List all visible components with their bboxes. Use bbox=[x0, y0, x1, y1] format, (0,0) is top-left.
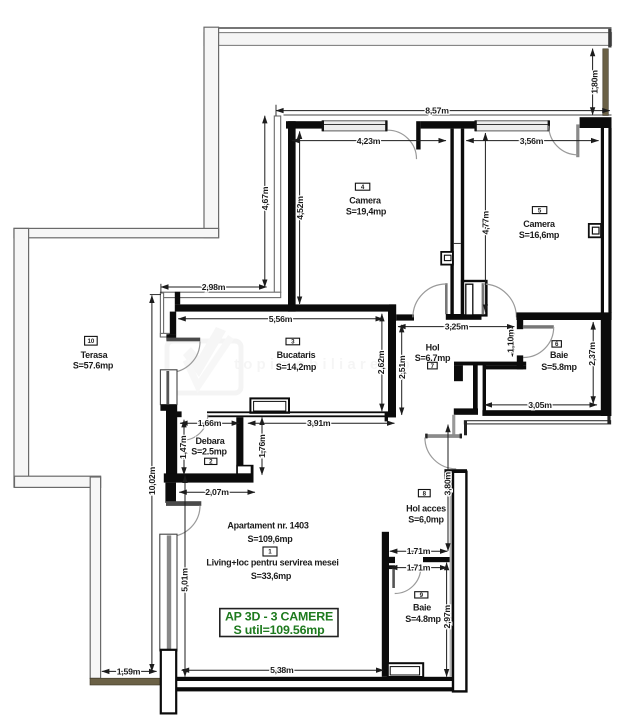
svg-text:S=57.6mp: S=57.6mp bbox=[73, 360, 114, 370]
svg-text:2: 2 bbox=[209, 459, 213, 466]
svg-text:Baie: Baie bbox=[413, 603, 431, 613]
svg-text:S=6,0mp: S=6,0mp bbox=[408, 515, 444, 525]
svg-text:5,01m: 5,01m bbox=[180, 568, 190, 592]
svg-text:7: 7 bbox=[431, 363, 435, 370]
svg-text:10,02m: 10,02m bbox=[147, 466, 157, 494]
svg-text:1,47m: 1,47m bbox=[178, 435, 188, 459]
svg-text:2,97m: 2,97m bbox=[442, 605, 452, 629]
svg-text:1.71m: 1.71m bbox=[407, 546, 431, 556]
svg-text:Bucataris: Bucataris bbox=[277, 350, 316, 360]
svg-text:2,51m: 2,51m bbox=[397, 355, 407, 379]
svg-text:5,38m: 5,38m bbox=[270, 665, 294, 675]
svg-text:5,56m: 5,56m bbox=[269, 314, 293, 324]
svg-text:9: 9 bbox=[420, 592, 424, 599]
svg-text:2,98m: 2,98m bbox=[202, 282, 226, 292]
svg-text:1,10m: 1,10m bbox=[506, 329, 516, 353]
svg-text:2,07m: 2,07m bbox=[205, 487, 229, 497]
svg-text:3: 3 bbox=[291, 339, 295, 346]
svg-text:S=4.8mp: S=4.8mp bbox=[405, 614, 441, 624]
svg-text:S util=109.56mp: S util=109.56mp bbox=[233, 623, 325, 637]
svg-text:S=33,6mp: S=33,6mp bbox=[251, 571, 292, 581]
svg-text:5: 5 bbox=[538, 207, 542, 214]
svg-text:3,91m: 3,91m bbox=[307, 418, 331, 428]
svg-text:1,80m: 1,80m bbox=[590, 70, 600, 94]
svg-text:4,23m: 4,23m bbox=[357, 136, 381, 146]
svg-text:Debara: Debara bbox=[195, 436, 225, 446]
svg-text:S=2.5mp: S=2.5mp bbox=[191, 446, 227, 456]
svg-text:1,66m: 1,66m bbox=[198, 418, 222, 428]
svg-text:S=14,2mp: S=14,2mp bbox=[276, 362, 317, 372]
svg-text:1.71m: 1.71m bbox=[407, 563, 431, 573]
svg-text:3,80m: 3,80m bbox=[442, 472, 452, 496]
svg-text:1,59m: 1,59m bbox=[117, 666, 141, 676]
svg-text:Terasa: Terasa bbox=[81, 350, 109, 360]
svg-text:3,05m: 3,05m bbox=[528, 400, 552, 410]
svg-text:4: 4 bbox=[361, 184, 365, 191]
svg-text:4,52m: 4,52m bbox=[295, 196, 305, 220]
svg-text:S=16,6mp: S=16,6mp bbox=[519, 230, 560, 240]
svg-text:Camera: Camera bbox=[523, 219, 556, 229]
svg-text:3,25m: 3,25m bbox=[445, 322, 469, 332]
svg-text:4,67m: 4,67m bbox=[260, 186, 270, 210]
svg-text:2,62m: 2,62m bbox=[376, 350, 386, 374]
svg-text:S=5.8mp: S=5.8mp bbox=[541, 362, 577, 372]
svg-text:1,76m: 1,76m bbox=[257, 434, 267, 458]
svg-text:10: 10 bbox=[87, 338, 94, 345]
svg-text:Hol: Hol bbox=[426, 343, 440, 353]
svg-text:3,56m: 3,56m bbox=[520, 136, 544, 146]
svg-text:8: 8 bbox=[423, 490, 427, 497]
svg-text:S=6.7mp: S=6.7mp bbox=[415, 353, 451, 363]
svg-text:1: 1 bbox=[268, 549, 272, 556]
svg-text:Camera: Camera bbox=[349, 196, 382, 206]
svg-text:Hol acces: Hol acces bbox=[406, 504, 446, 514]
svg-text:Apartament nr. 1403: Apartament nr. 1403 bbox=[227, 521, 309, 531]
svg-text:S=19,4mp: S=19,4mp bbox=[346, 207, 387, 217]
svg-text:S=109,6mp: S=109,6mp bbox=[247, 534, 293, 544]
svg-text:8,57m: 8,57m bbox=[425, 106, 449, 116]
svg-text:6: 6 bbox=[555, 341, 559, 348]
svg-text:AP 3D - 3 CAMERE: AP 3D - 3 CAMERE bbox=[225, 610, 333, 624]
svg-text:Baie: Baie bbox=[550, 350, 568, 360]
svg-text:4,77m: 4,77m bbox=[481, 211, 491, 235]
svg-text:Living+loc pentru servirea mes: Living+loc pentru servirea mesei bbox=[206, 558, 338, 568]
svg-text:2,37m: 2,37m bbox=[587, 342, 597, 366]
